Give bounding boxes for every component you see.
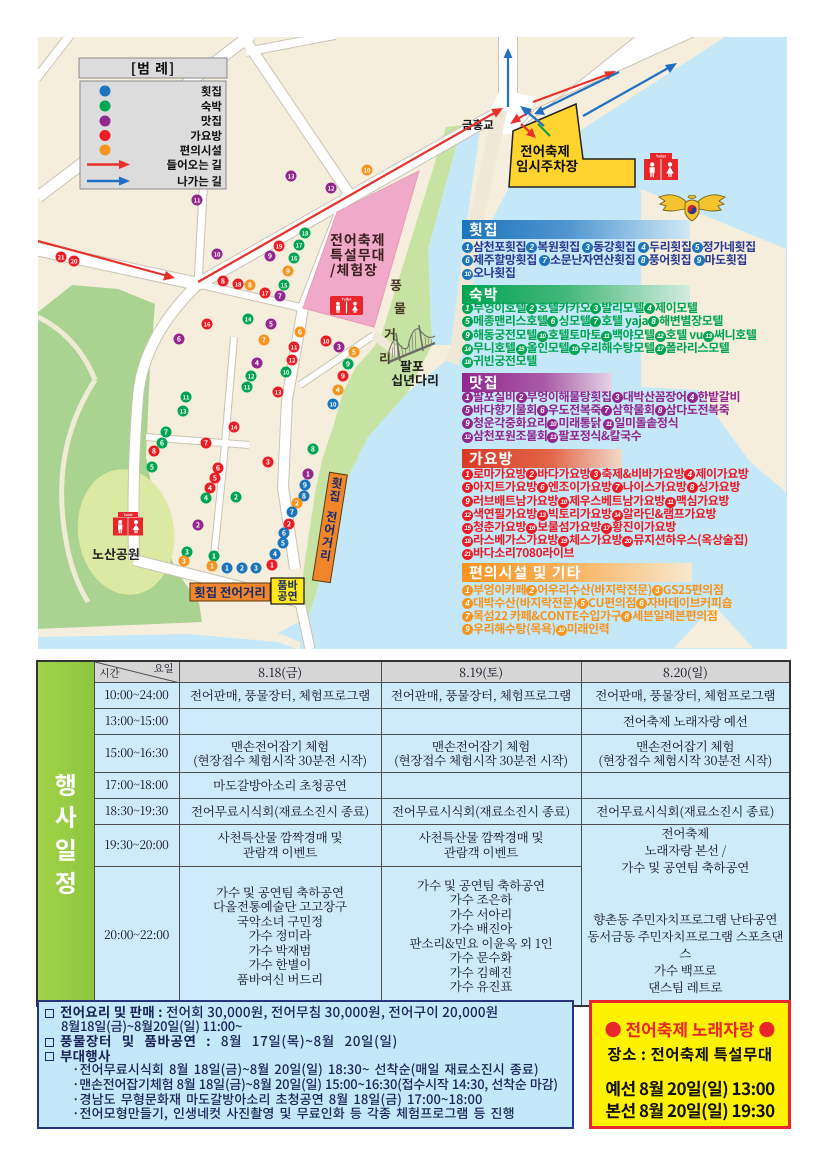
svg-text:9: 9 bbox=[268, 251, 272, 261]
svg-text:4: 4 bbox=[204, 493, 208, 503]
svg-text:1: 1 bbox=[210, 561, 214, 571]
svg-text:17: 17 bbox=[262, 288, 269, 297]
svg-text:9: 9 bbox=[303, 480, 307, 490]
svg-text:11: 11 bbox=[244, 382, 251, 391]
svg-text:공연: 공연 bbox=[277, 588, 297, 604]
svg-text:1: 1 bbox=[270, 560, 274, 570]
svg-text:6: 6 bbox=[298, 327, 302, 337]
svg-text:20: 20 bbox=[71, 256, 78, 265]
svg-text:13: 13 bbox=[180, 406, 187, 415]
svg-text:10: 10 bbox=[214, 249, 221, 258]
svg-text:18: 18 bbox=[302, 228, 309, 237]
svg-text:5: 5 bbox=[352, 347, 356, 357]
svg-text:11: 11 bbox=[194, 195, 201, 204]
svg-text:2: 2 bbox=[295, 498, 299, 508]
svg-text:18: 18 bbox=[235, 279, 242, 288]
svg-text:5: 5 bbox=[281, 538, 285, 548]
svg-text:금홍교: 금홍교 bbox=[462, 117, 494, 133]
svg-text:4: 4 bbox=[255, 358, 259, 368]
svg-text:12: 12 bbox=[328, 183, 335, 192]
svg-text:21: 21 bbox=[58, 252, 65, 261]
svg-text:5: 5 bbox=[150, 462, 154, 472]
svg-text:6: 6 bbox=[216, 463, 220, 473]
svg-text:9: 9 bbox=[346, 359, 350, 369]
svg-text:/체험장: /체험장 bbox=[330, 260, 378, 280]
svg-text:4: 4 bbox=[273, 549, 277, 559]
svg-text:6: 6 bbox=[177, 334, 181, 344]
svg-text:2: 2 bbox=[240, 563, 244, 573]
svg-text:물: 물 bbox=[394, 298, 406, 317]
svg-text:10: 10 bbox=[330, 399, 337, 408]
svg-text:8: 8 bbox=[221, 276, 225, 286]
svg-text:10: 10 bbox=[323, 336, 330, 345]
svg-text:6: 6 bbox=[282, 528, 286, 538]
svg-text:8: 8 bbox=[311, 444, 315, 454]
svg-text:2: 2 bbox=[234, 492, 238, 502]
svg-text:Toilet: Toilet bbox=[656, 154, 667, 159]
svg-text:7: 7 bbox=[164, 427, 168, 437]
svg-text:8: 8 bbox=[152, 446, 156, 456]
svg-text:3: 3 bbox=[337, 342, 341, 352]
svg-text:10: 10 bbox=[364, 165, 371, 174]
svg-text:11: 11 bbox=[291, 342, 298, 351]
svg-text:나가는 길: 나가는 길 bbox=[177, 174, 222, 190]
svg-text:3: 3 bbox=[182, 556, 186, 566]
svg-text:6: 6 bbox=[160, 438, 164, 448]
svg-text:10: 10 bbox=[283, 367, 290, 376]
svg-text:들어오는 길: 들어오는 길 bbox=[166, 157, 222, 173]
svg-text:3: 3 bbox=[266, 457, 270, 467]
svg-text:횟집 전어거리: 횟집 전어거리 bbox=[194, 582, 266, 601]
svg-text:7: 7 bbox=[262, 335, 266, 345]
svg-text:풍: 풍 bbox=[390, 275, 402, 294]
svg-text:19: 19 bbox=[276, 241, 283, 250]
svg-text:7: 7 bbox=[290, 507, 294, 517]
svg-text:4: 4 bbox=[336, 385, 340, 395]
svg-text:1: 1 bbox=[306, 469, 310, 479]
svg-text:11: 11 bbox=[183, 392, 190, 401]
svg-text:2: 2 bbox=[287, 519, 291, 529]
svg-text:횟집: 횟집 bbox=[201, 84, 222, 100]
svg-text:9: 9 bbox=[341, 371, 345, 381]
svg-text:2: 2 bbox=[196, 520, 200, 530]
svg-text:1: 1 bbox=[225, 563, 229, 573]
svg-text:[범 례]: [범 례] bbox=[131, 59, 176, 79]
svg-text:3: 3 bbox=[254, 563, 258, 573]
svg-text:9: 9 bbox=[286, 266, 290, 276]
svg-text:12: 12 bbox=[289, 355, 296, 364]
svg-text:7: 7 bbox=[204, 438, 208, 448]
svg-text:14: 14 bbox=[245, 314, 252, 323]
svg-text:5: 5 bbox=[269, 319, 273, 329]
svg-text:8: 8 bbox=[302, 491, 306, 501]
svg-text:15: 15 bbox=[281, 280, 288, 289]
svg-text:맛집: 맛집 bbox=[201, 113, 222, 129]
svg-text:13: 13 bbox=[288, 171, 295, 180]
svg-text:노산공원: 노산공원 bbox=[92, 544, 140, 563]
svg-text:16: 16 bbox=[291, 253, 298, 262]
svg-text:1: 1 bbox=[212, 551, 216, 561]
svg-text:Toilet: Toilet bbox=[123, 512, 133, 517]
svg-text:12: 12 bbox=[248, 371, 255, 380]
svg-text:4: 4 bbox=[208, 483, 212, 493]
svg-text:17: 17 bbox=[296, 240, 303, 249]
svg-text:8: 8 bbox=[248, 280, 252, 290]
svg-text:5: 5 bbox=[213, 473, 217, 483]
svg-text:13: 13 bbox=[275, 387, 282, 396]
svg-text:16: 16 bbox=[204, 319, 211, 328]
svg-text:십년다리: 십년다리 bbox=[391, 370, 439, 389]
svg-text:14: 14 bbox=[231, 422, 238, 431]
svg-text:7: 7 bbox=[278, 291, 282, 301]
svg-text:임시주차장: 임시주차장 bbox=[516, 155, 579, 175]
